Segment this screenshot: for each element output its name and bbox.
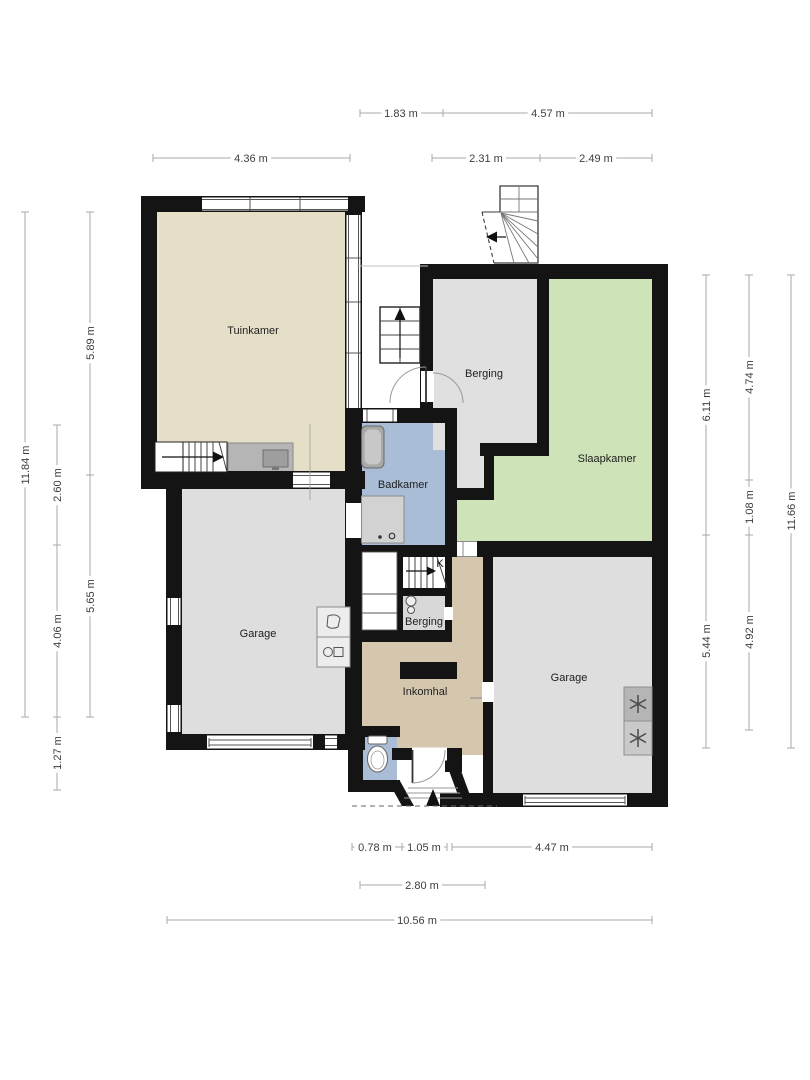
closets: [362, 552, 397, 630]
door-opening: [444, 607, 453, 620]
wall-segment: [452, 488, 494, 500]
window: [168, 705, 181, 732]
cellar-stair-label: K: [436, 558, 444, 570]
dim-label: 11.84 m: [20, 446, 32, 485]
label-tuinkamer: Tuinkamer: [227, 325, 279, 337]
door-opening: [457, 542, 477, 557]
dim-label: 1.27 m: [52, 736, 64, 770]
dim-label: 4.36 m: [234, 153, 268, 165]
front-door: [412, 748, 447, 784]
stair-cellar: K: [406, 557, 447, 588]
window: [293, 473, 330, 488]
garage-door: [207, 736, 313, 749]
dim-label: 1.05 m: [407, 842, 441, 854]
dim-label: 5.44 m: [701, 624, 713, 658]
label-garage-left: Garage: [240, 628, 277, 640]
dim-label: 4.06 m: [52, 614, 64, 648]
door-opening: [363, 410, 397, 422]
window: [325, 736, 337, 749]
wall-segment: [445, 541, 660, 557]
toilet: [368, 736, 388, 772]
dim-label: 5.89 m: [85, 326, 97, 360]
window: [347, 215, 361, 408]
label-badkamer: Badkamer: [378, 479, 428, 491]
dim-label: 4.47 m: [535, 842, 569, 854]
ventilation-units: [624, 687, 652, 755]
dim-label: 11.66 m: [786, 492, 798, 531]
floor-plan-svg: K: [0, 0, 810, 1080]
tv-stand: [272, 467, 279, 470]
arrow-right-icon: [427, 567, 436, 576]
garage-door: [523, 795, 627, 806]
stair-up: [380, 307, 420, 363]
window: [168, 598, 181, 625]
inkomhal-arm-floor: [452, 545, 488, 642]
wall-segment: [345, 408, 457, 423]
wall-segment: [345, 630, 452, 642]
room-tuinkamer-floor: [150, 205, 350, 478]
dim-label: 10.56 m: [397, 915, 437, 927]
dim-label: 2.60 m: [52, 468, 64, 502]
wall-segment: [400, 588, 452, 596]
dim-label: 1.08 m: [744, 490, 756, 524]
fixtures: [228, 443, 293, 473]
dim-label: 4.92 m: [744, 615, 756, 649]
exterior-stair: [482, 186, 538, 263]
label-slaapkamer: Slaapkamer: [578, 453, 637, 465]
stair-down-tuinkamer: [155, 442, 227, 472]
door-opening: [346, 503, 362, 538]
dim-label: 4.57 m: [531, 108, 565, 120]
label-berging-small: Berging: [405, 616, 443, 628]
boiler: [406, 596, 416, 614]
wall-segment: [483, 541, 493, 798]
wall-segment: [392, 748, 414, 760]
dim-label: 2.80 m: [405, 880, 439, 892]
shower: [362, 496, 405, 543]
dim-label: 0.78 m: [358, 842, 392, 854]
wall-segment: [537, 264, 549, 456]
room-floors: [150, 205, 660, 800]
dim-label: 1.83 m: [384, 108, 418, 120]
floorplan-page: K: [0, 0, 810, 1080]
dim-label: 5.65 m: [85, 579, 97, 613]
label-garage-right: Garage: [551, 672, 588, 684]
appliance-left: [317, 607, 350, 667]
window: [202, 198, 348, 211]
dim-label: 2.31 m: [469, 153, 503, 165]
feature-wall-block: [400, 662, 457, 679]
dim-label: 2.49 m: [579, 153, 613, 165]
tv-screen: [263, 450, 288, 467]
dim-label: 4.74 m: [744, 360, 756, 394]
dim-label: 6.11 m: [701, 389, 713, 422]
label-berging-top: Berging: [465, 368, 503, 380]
wall-segment: [652, 264, 668, 807]
bathtub: [362, 426, 385, 468]
label-inkomhal: Inkomhal: [403, 686, 448, 698]
wall-segment: [445, 408, 457, 548]
